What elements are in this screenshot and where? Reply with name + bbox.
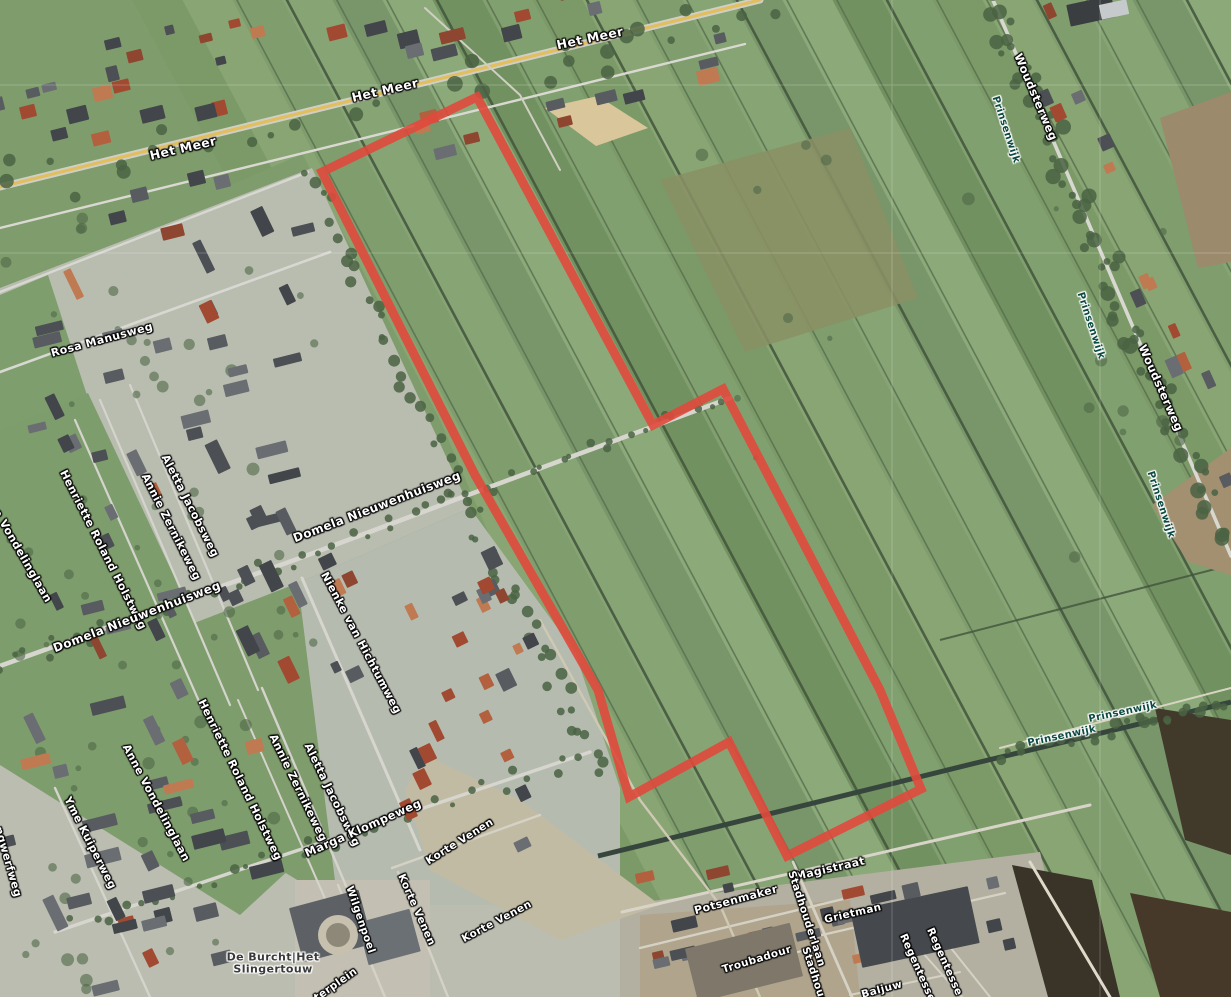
- map-viewport[interactable]: Het MeerHet MeerHet MeerWoudsterwegWouds…: [0, 0, 1231, 997]
- aerial-imagery: [0, 0, 1231, 997]
